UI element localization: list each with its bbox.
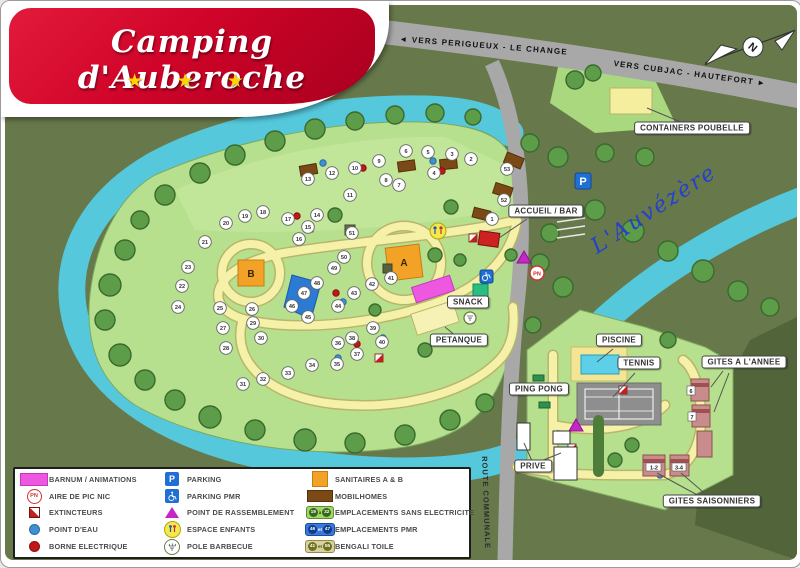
legend-item: SANITAIRES A & B: [305, 471, 465, 487]
tree-icon: [476, 394, 494, 412]
svg-text:48: 48: [314, 281, 320, 287]
legend-item-label: PARKING PMR: [187, 492, 241, 501]
svg-text:7: 7: [397, 183, 400, 189]
svg-text:27: 27: [220, 326, 226, 332]
svg-text:6: 6: [689, 389, 692, 395]
legend-box: BARNUM / ANIMATIONSPNAIRE DE PIC NICEXTI…: [13, 467, 471, 559]
pitch-marker: 41: [385, 272, 398, 285]
svg-text:33: 33: [285, 371, 291, 377]
legend-item: POINT D'EAU: [19, 522, 157, 538]
tree-icon: [109, 344, 131, 366]
svg-text:16: 16: [296, 237, 302, 243]
electric-point-icon: [29, 541, 40, 552]
pitch-marker: 36: [332, 337, 345, 350]
pitch-marker: 2: [465, 153, 478, 166]
tree-icon: [265, 131, 285, 151]
svg-text:21: 21: [202, 240, 208, 246]
legend-item-label: AIRE DE PIC NIC: [49, 492, 110, 501]
svg-text:3: 3: [450, 152, 453, 158]
pitch-marker: 3: [446, 148, 459, 161]
pitch-marker: 32: [257, 373, 270, 386]
pitch-marker: 6: [400, 145, 413, 158]
svg-text:20: 20: [223, 221, 229, 227]
pitch-marker: 29: [247, 317, 260, 330]
svg-text:1: 1: [490, 217, 493, 223]
pitch-marker: 44: [332, 300, 345, 313]
tree-icon: [566, 71, 584, 89]
pitch-marker: 17: [282, 213, 295, 226]
svg-text:PN: PN: [533, 272, 541, 278]
mobilhome-icon: [307, 490, 333, 502]
svg-text:39: 39: [370, 326, 376, 332]
legend-item: POINT DE RASSEMBLEMENT: [157, 505, 305, 521]
tree-icon: [521, 134, 539, 152]
star-rating: ★ ★ ★: [9, 70, 375, 93]
pitch-marker: 7: [393, 179, 406, 192]
tree-icon: [345, 433, 365, 453]
legend-item: EXTINCTEURS: [19, 505, 157, 521]
camping-map-page: A B: [0, 0, 800, 568]
svg-text:14: 14: [314, 213, 321, 219]
tree-icon: [99, 274, 121, 296]
svg-text:29: 29: [250, 321, 256, 327]
pitch-marker: 49: [328, 262, 341, 275]
label-accueil: ACCUEIL / BAR: [508, 205, 583, 218]
tree-icon: [596, 144, 614, 162]
legend-item: PNAIRE DE PIC NIC: [19, 488, 157, 504]
tree-icon: [294, 429, 316, 451]
accueil-building: [478, 231, 500, 248]
tree-icon: [155, 185, 175, 205]
pitch-marker: 48: [311, 277, 324, 290]
badge-blue-icon: 46et47: [305, 523, 335, 536]
svg-text:35: 35: [334, 362, 340, 368]
pitch-marker: 14: [311, 209, 324, 222]
hedge: [593, 415, 604, 477]
pool-water: [581, 355, 619, 374]
pitch-marker: 20: [220, 217, 233, 230]
pitch-marker: 30: [255, 332, 268, 345]
legend-item-label: EMPLACEMENTS SANS ELECTRICITE: [335, 508, 474, 517]
logo-banner: Camping d'Auberoche ★ ★ ★: [9, 8, 375, 104]
svg-text:34: 34: [309, 363, 316, 369]
tree-icon: [395, 425, 415, 445]
svg-text:8: 8: [384, 178, 387, 184]
pitch-marker: 21: [199, 236, 212, 249]
legend-item-label: EXTINCTEURS: [49, 508, 103, 517]
legend-column: SANITAIRES A & BMOBILHOMES19à32EMPLACEME…: [305, 471, 465, 555]
barnum-icon: [20, 473, 48, 486]
svg-text:17: 17: [285, 217, 291, 223]
svg-text:2: 2: [469, 157, 472, 163]
pitch-marker: 39: [367, 322, 380, 335]
pitch-marker: 28: [220, 342, 233, 355]
tree-icon: [190, 163, 210, 183]
svg-text:42: 42: [369, 282, 375, 288]
tree-icon: [115, 240, 135, 260]
svg-text:5: 5: [426, 150, 429, 156]
pitch-marker: 13: [302, 173, 315, 186]
pitch-marker: 46: [286, 300, 299, 313]
kids-area-icon: [164, 521, 181, 538]
svg-text:28: 28: [223, 346, 229, 352]
svg-text:41: 41: [388, 276, 394, 282]
pitch-marker: 19: [239, 210, 252, 223]
legend-item-label: POLE BARBECUE: [187, 542, 253, 551]
svg-text:13: 13: [305, 177, 311, 183]
pitch-marker: 40: [376, 336, 389, 349]
pitch-marker: 23: [182, 261, 195, 274]
legend-item-label: POINT D'EAU: [49, 525, 98, 534]
pitch-marker: 50: [338, 251, 351, 264]
svg-text:19: 19: [242, 214, 248, 220]
tree-icon: [505, 249, 517, 261]
svg-text:38: 38: [349, 336, 355, 342]
pitch-marker: 11: [344, 189, 357, 202]
legend-column: BARNUM / ANIMATIONSPNAIRE DE PIC NICEXTI…: [19, 471, 157, 555]
pitch-marker: 31: [237, 378, 250, 391]
tree-icon: [95, 310, 115, 330]
tree-icon: [165, 390, 185, 410]
tree-icon: [428, 248, 442, 262]
pitch-marker: 33: [282, 367, 295, 380]
svg-text:37: 37: [354, 352, 360, 358]
pitch-marker: 47: [298, 287, 311, 300]
label-petanque: PETANQUE: [430, 334, 488, 347]
tree-icon: [131, 211, 149, 229]
svg-text:9: 9: [377, 159, 380, 165]
kids-area-icon: [430, 223, 446, 239]
tree-icon: [328, 208, 342, 222]
svg-text:15: 15: [305, 225, 311, 231]
legend-item-label: POINT DE RASSEMBLEMENT: [187, 508, 294, 517]
svg-text:45: 45: [305, 315, 311, 321]
svg-text:10: 10: [352, 166, 358, 172]
tree-icon: [728, 281, 748, 301]
svg-text:40: 40: [379, 340, 385, 346]
svg-text:P: P: [579, 176, 586, 188]
sanitaires-b: B: [238, 260, 264, 286]
tree-icon: [608, 453, 622, 467]
svg-text:30: 30: [258, 336, 264, 342]
water-point-icon: [29, 524, 40, 535]
parking-icon: P: [575, 173, 591, 189]
pitch-marker: 27: [217, 322, 230, 335]
tree-icon: [525, 317, 541, 333]
badge-olive-icon: 41et55: [305, 540, 335, 553]
assembly-point-icon: [165, 507, 179, 518]
tree-icon: [692, 260, 714, 282]
svg-text:31: 31: [240, 382, 246, 388]
svg-text:53: 53: [504, 167, 510, 173]
legend-item: PPARKING: [157, 471, 305, 487]
pitch-marker: 16: [293, 233, 306, 246]
tree-icon: [454, 254, 466, 266]
label-tennis: TENNIS: [617, 357, 660, 370]
picnic-pn-icon: PN: [530, 266, 544, 280]
svg-text:43: 43: [351, 291, 357, 297]
svg-text:44: 44: [335, 304, 342, 310]
svg-text:52: 52: [501, 198, 507, 204]
legend-item: PARKING PMR: [157, 488, 305, 504]
tree-icon: [426, 104, 444, 122]
svg-text:18: 18: [260, 210, 266, 216]
pitch-marker: 51: [346, 227, 359, 240]
tree-icon: [636, 148, 654, 166]
tree-icon: [625, 438, 639, 452]
bbq-icon: [164, 539, 180, 555]
legend-item: BORNE ELECTRIQUE: [19, 539, 157, 555]
tree-icon: [245, 420, 265, 440]
badge-green-icon: 19à32: [306, 506, 335, 519]
legend-item: 19à32EMPLACEMENTS SANS ELECTRICITE: [305, 505, 465, 521]
svg-text:26: 26: [249, 307, 255, 313]
svg-text:A: A: [400, 258, 407, 269]
parking-icon: P: [165, 472, 179, 486]
tree-icon: [553, 277, 573, 297]
tree-icon: [541, 224, 559, 242]
svg-text:36: 36: [335, 341, 341, 347]
legend-item: BARNUM / ANIMATIONS: [19, 471, 157, 487]
pitch-marker: 22: [176, 280, 189, 293]
svg-text:B: B: [247, 269, 254, 280]
legend-item: ESPACE ENFANTS: [157, 522, 305, 538]
legend-item-label: BARNUM / ANIMATIONS: [49, 475, 137, 484]
legend-item: 41et55BENGALI TOILE: [305, 539, 465, 555]
tree-icon: [761, 298, 779, 316]
legend-item: 46et47EMPLACEMENTS PMR: [305, 522, 465, 538]
tree-icon: [440, 410, 460, 430]
pitch-marker: 8: [380, 174, 393, 187]
tree-icon: [305, 119, 325, 139]
legend-item-label: PARKING: [187, 475, 222, 484]
pitch-marker: 53: [501, 163, 514, 176]
pitch-marker: 9: [373, 155, 386, 168]
pitch-marker: 43: [348, 287, 361, 300]
parking-pmr-icon: [480, 270, 493, 283]
svg-text:51: 51: [349, 231, 355, 237]
label-containers: CONTAINERS POUBELLE: [634, 122, 750, 135]
tree-icon: [585, 65, 601, 81]
svg-text:22: 22: [179, 284, 185, 290]
svg-text:23: 23: [185, 265, 191, 271]
legend-item-label: BORNE ELECTRIQUE: [49, 542, 128, 551]
svg-text:50: 50: [341, 255, 347, 261]
tree-icon: [386, 106, 404, 124]
tree-icon: [465, 109, 481, 125]
pitch-marker: 38: [346, 332, 359, 345]
legend-column: PPARKINGPARKING PMRPOINT DE RASSEMBLEMEN…: [157, 471, 305, 555]
tree-icon: [660, 332, 676, 348]
bbq-icon: [464, 312, 476, 324]
legend-item: MOBILHOMES: [305, 488, 465, 504]
tree-icon: [585, 200, 605, 220]
svg-text:11: 11: [347, 193, 353, 199]
tree-icon: [548, 147, 568, 167]
svg-text:25: 25: [217, 306, 223, 312]
pitch-marker: 4: [428, 167, 441, 180]
pitch-marker: 10: [349, 162, 362, 175]
label-snack: SNACK: [447, 296, 489, 309]
pitch-marker: 12: [326, 167, 339, 180]
svg-text:24: 24: [175, 305, 182, 311]
legend-item-label: ESPACE ENFANTS: [187, 525, 255, 534]
tree-icon: [135, 370, 155, 390]
picnic-icon: PN: [27, 489, 42, 504]
svg-text:46: 46: [289, 304, 295, 310]
pitch-marker: 18: [257, 206, 270, 219]
label-gites-annee: GITES A L'ANNEE: [702, 356, 787, 369]
pitch-marker: 1: [486, 213, 499, 226]
label-ping-pong: PING PONG: [509, 383, 569, 396]
svg-text:12: 12: [329, 171, 335, 177]
legend-item-label: MOBILHOMES: [335, 492, 387, 501]
svg-text:1-2: 1-2: [650, 466, 658, 472]
legend-item: POLE BARBECUE: [157, 539, 305, 555]
sanitaires-icon: [312, 471, 328, 487]
svg-text:6: 6: [404, 149, 407, 155]
tree-icon: [225, 145, 245, 165]
svg-text:3-4: 3-4: [675, 466, 684, 472]
pitch-marker: 5: [422, 146, 435, 159]
label-prive: PRIVE: [514, 460, 552, 473]
pitch-marker: 24: [172, 301, 185, 314]
tree-icon: [346, 112, 364, 130]
parking-pmr-icon: [165, 489, 179, 503]
tree-icon: [369, 304, 381, 316]
legend-item-label: SANITAIRES A & B: [335, 475, 403, 484]
pitch-marker: 45: [302, 311, 315, 324]
pitch-marker: 34: [306, 359, 319, 372]
svg-text:32: 32: [260, 377, 266, 383]
pitch-marker: 26: [246, 303, 259, 316]
pitch-marker: 25: [214, 302, 227, 315]
svg-text:47: 47: [301, 291, 307, 297]
label-gites-saisonniers: GITES SAISONNIERS: [663, 495, 761, 508]
pitch-marker: 35: [331, 358, 344, 371]
legend-item-label: BENGALI TOILE: [335, 542, 394, 551]
pitch-marker: 15: [302, 221, 315, 234]
label-piscine: PISCINE: [596, 334, 642, 347]
legend-item-label: EMPLACEMENTS PMR: [335, 525, 418, 534]
pitch-marker: 42: [366, 278, 379, 291]
containers-yard: [610, 88, 652, 114]
pitch-marker: 37: [351, 348, 364, 361]
tree-icon: [444, 200, 458, 214]
svg-text:49: 49: [331, 266, 337, 272]
svg-text:7: 7: [690, 415, 693, 421]
extinguisher-icon: [29, 507, 40, 518]
tree-icon: [199, 406, 221, 428]
tree-icon: [658, 241, 678, 261]
